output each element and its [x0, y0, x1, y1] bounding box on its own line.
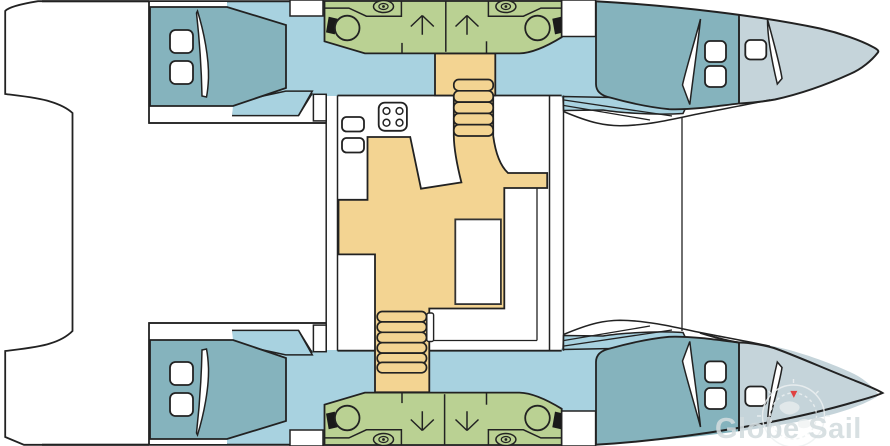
svg-text:Globe Sail: Globe Sail [715, 413, 862, 445]
